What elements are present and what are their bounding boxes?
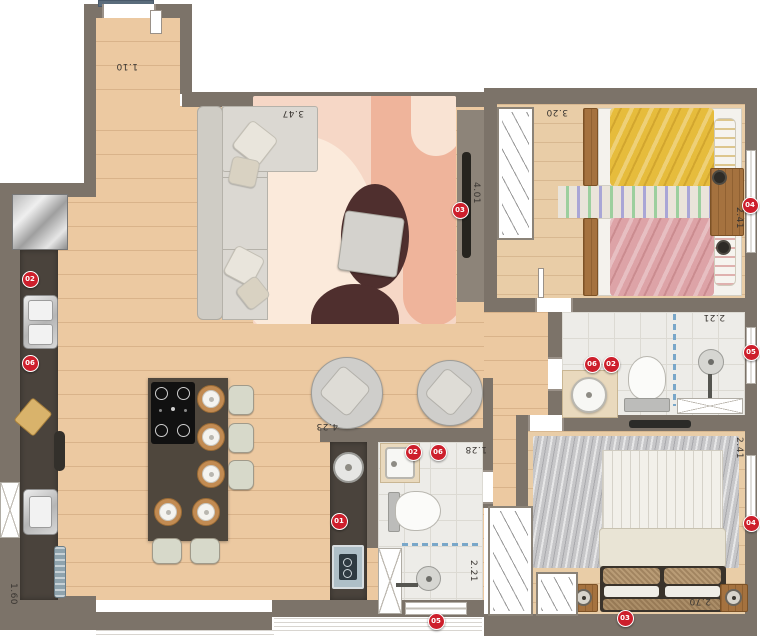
marker-badge-06: 06 xyxy=(22,355,39,372)
dimension-label: 3.47 xyxy=(282,108,304,118)
dimension-label: 2.70 xyxy=(689,596,711,606)
dimension-label: 3.20 xyxy=(546,107,568,117)
dimension-label: 4.23 xyxy=(316,421,338,431)
marker-badge-01: 01 xyxy=(331,513,348,530)
dimension-label: 1.60 xyxy=(8,583,18,605)
marker-badge-05: 05 xyxy=(428,613,445,630)
dimension-label: 1.28 xyxy=(465,444,487,454)
floor-plan: 1.103.474.013.202.412.214.231.282.211.60… xyxy=(0,0,760,637)
dimension-label: 2.21 xyxy=(468,560,478,582)
marker-badge-02: 02 xyxy=(22,271,39,288)
dimension-label: 2.21 xyxy=(703,312,725,322)
dimension-label: 1.10 xyxy=(116,61,138,71)
marker-badge-03: 03 xyxy=(617,610,634,627)
dimension-label: 2.41 xyxy=(734,437,744,459)
marker-badge-02: 02 xyxy=(603,356,620,373)
dimension-label: 4.01 xyxy=(471,182,481,204)
marker-badge-05: 05 xyxy=(743,344,760,361)
marker-badge-04: 04 xyxy=(742,197,759,214)
marker-badge-03: 03 xyxy=(452,202,469,219)
marker-badge-06: 06 xyxy=(584,356,601,373)
marker-badge-06: 06 xyxy=(430,444,447,461)
annotations-layer: 1.103.474.013.202.412.214.231.282.211.60… xyxy=(0,0,760,637)
marker-badge-02: 02 xyxy=(405,444,422,461)
marker-badge-04: 04 xyxy=(743,515,760,532)
